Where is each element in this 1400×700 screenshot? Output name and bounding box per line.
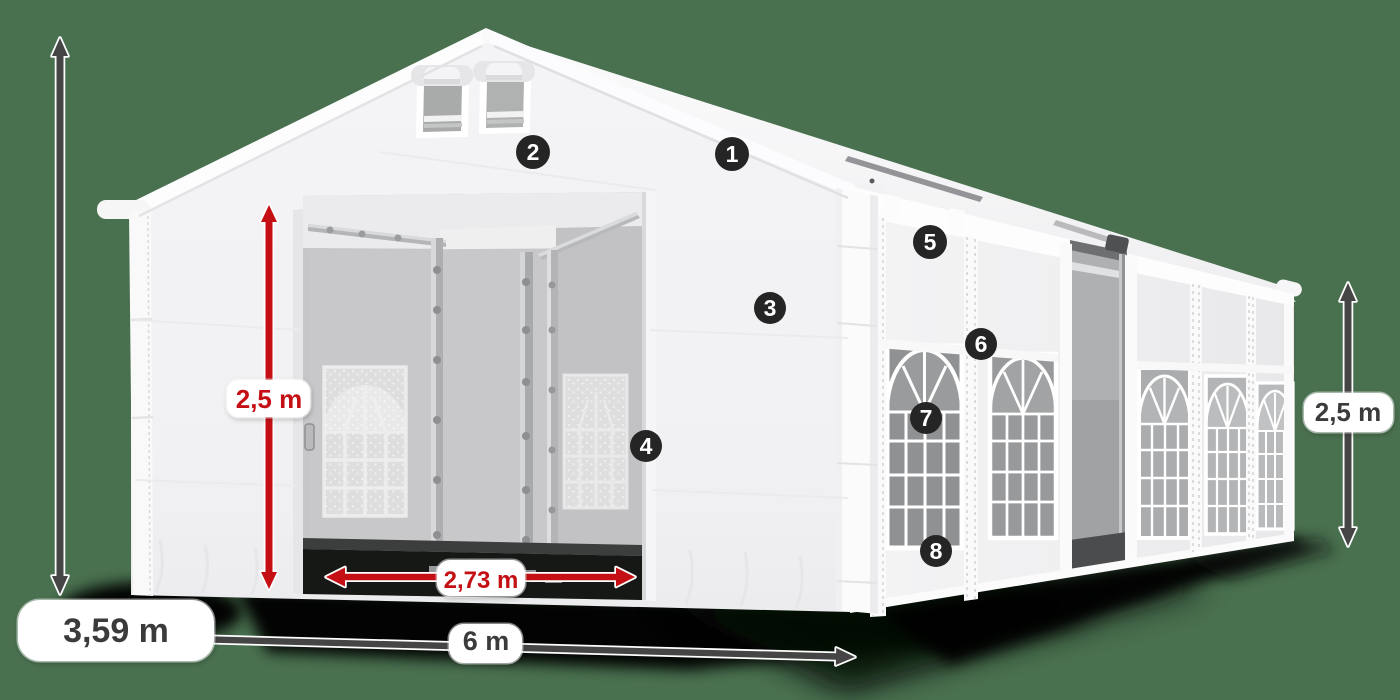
svg-text:4: 4 (640, 433, 653, 459)
svg-text:3: 3 (764, 295, 777, 321)
svg-text:6 m: 6 m (463, 626, 510, 656)
svg-text:3,59 m: 3,59 m (63, 612, 169, 650)
svg-text:2,5 m: 2,5 m (1315, 397, 1382, 427)
svg-text:2,73 m: 2,73 m (444, 567, 519, 594)
svg-text:2,5 m: 2,5 m (236, 384, 303, 414)
svg-text:7: 7 (920, 405, 933, 431)
svg-text:1: 1 (726, 141, 739, 167)
svg-text:5: 5 (924, 229, 937, 255)
svg-text:8: 8 (930, 538, 943, 564)
svg-text:2: 2 (527, 139, 540, 165)
svg-text:6: 6 (975, 331, 988, 357)
